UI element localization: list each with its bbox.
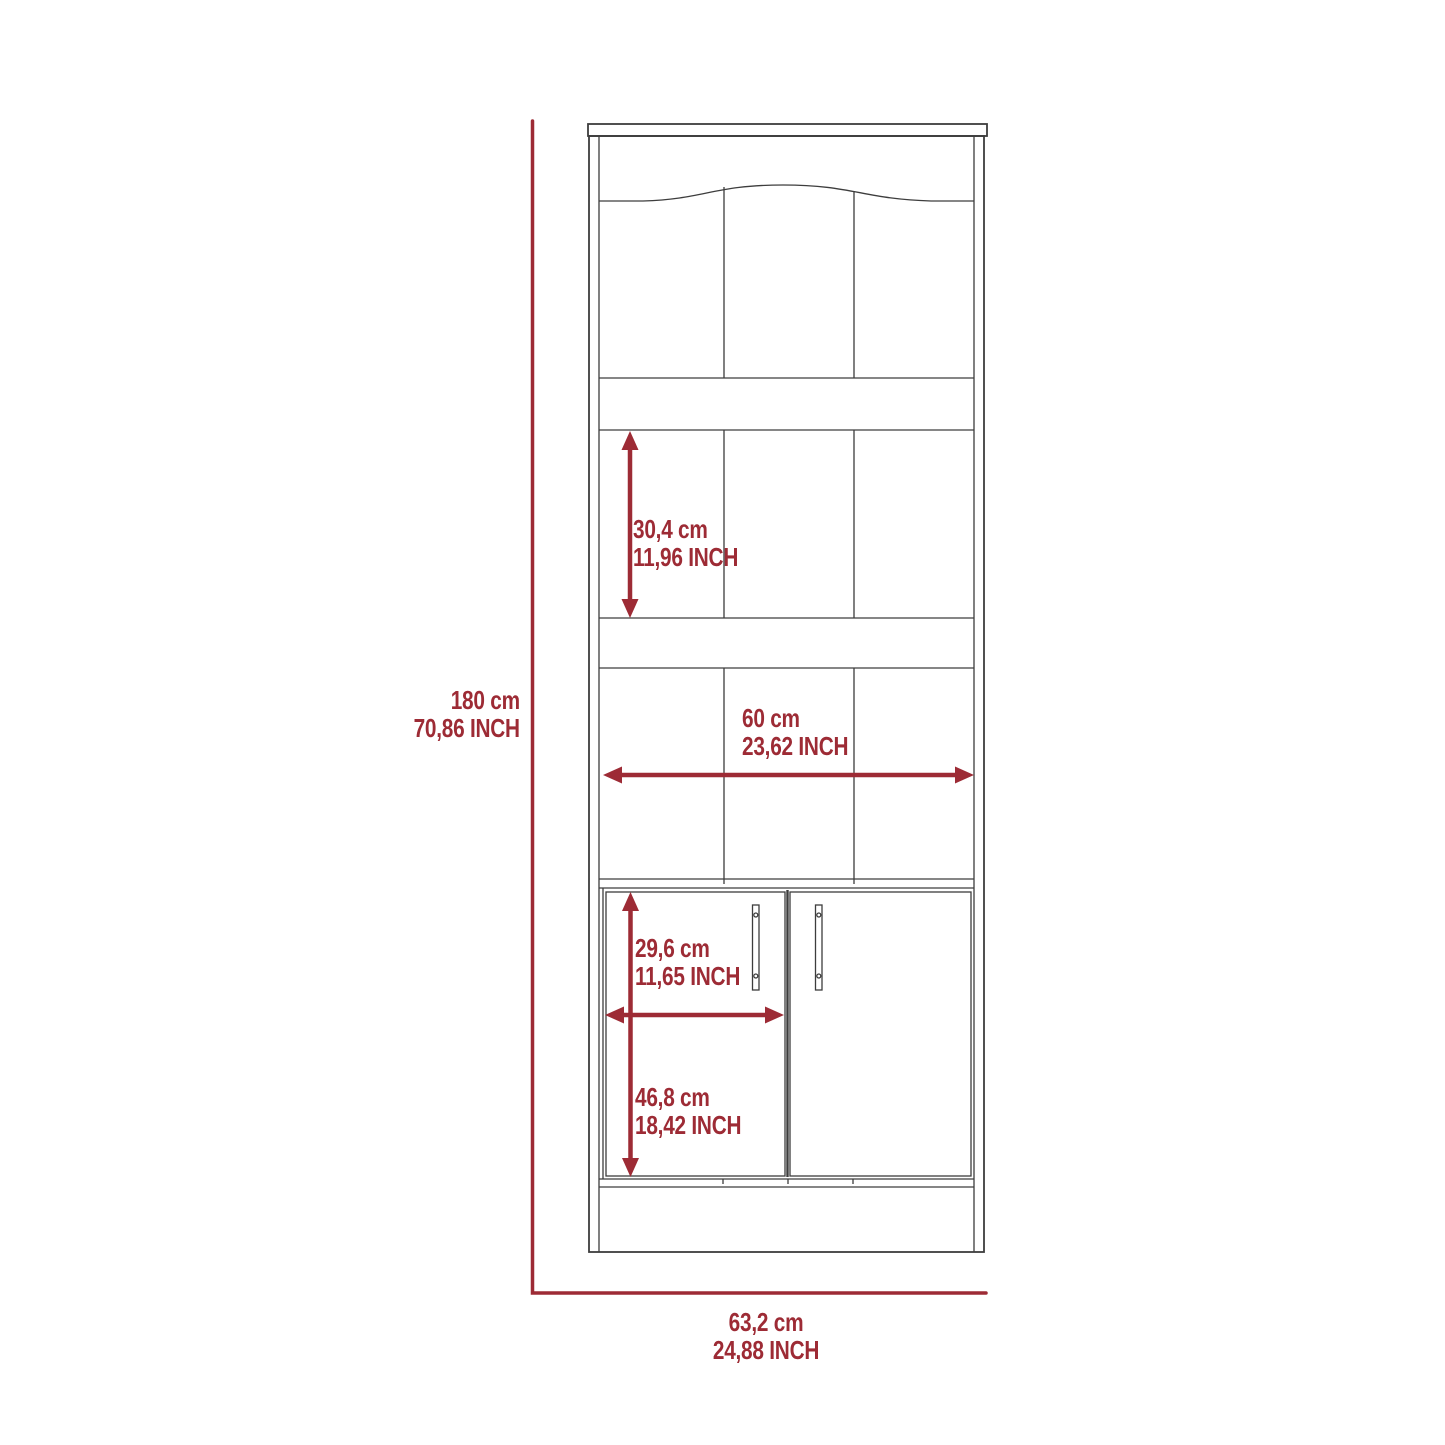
inner-width-cm: 60 cm	[742, 704, 848, 732]
right-door-panel	[790, 892, 971, 1176]
arrow-head-up-icon	[622, 892, 639, 911]
inner-width-arrow	[603, 767, 974, 784]
furniture-dimension-diagram: 180 cm 70,86 INCH 30,4 cm 11,96 INCH 60 …	[0, 0, 1445, 1445]
overall-height-inch: 70,86 INCH	[414, 714, 520, 742]
handle-screw	[754, 913, 758, 917]
door-width-label: 29,6 cm 11,65 INCH	[635, 934, 740, 990]
arrow-head-right-icon	[765, 1007, 784, 1024]
left-door-handle-icon	[753, 905, 760, 990]
shelf-height-cm: 30,4 cm	[633, 515, 738, 543]
shelf-height-label: 30,4 cm 11,96 INCH	[633, 515, 738, 571]
door-width-cm: 29,6 cm	[635, 934, 740, 962]
door-width-inch: 11,65 INCH	[635, 962, 740, 990]
overall-height-label: 180 cm 70,86 INCH	[414, 686, 520, 742]
cabinet-top-board	[588, 124, 987, 136]
handle-screw	[817, 913, 821, 917]
overall-height-cm: 180 cm	[414, 686, 520, 714]
overall-width-inch: 24,88 INCH	[713, 1336, 819, 1364]
overall-width-cm: 63,2 cm	[713, 1308, 819, 1336]
arrow-head-left-icon	[603, 767, 622, 784]
diagram-drawing	[0, 0, 1445, 1445]
door-height-cm: 46,8 cm	[635, 1083, 741, 1111]
arrow-head-up-icon	[622, 431, 639, 450]
door-height-inch: 18,42 INCH	[635, 1111, 741, 1139]
door-height-label: 46,8 cm 18,42 INCH	[635, 1083, 741, 1139]
arrow-head-down-icon	[622, 1158, 639, 1177]
inner-width-label: 60 cm 23,62 INCH	[742, 704, 848, 760]
overall-width-label: 63,2 cm 24,88 INCH	[713, 1308, 819, 1364]
handle-screw	[754, 974, 758, 978]
arrow-head-down-icon	[622, 599, 639, 618]
arrow-head-left-icon	[605, 1007, 624, 1024]
cabinet-arch-valance	[599, 185, 974, 201]
handle-screw	[817, 974, 821, 978]
right-door-handle-icon	[816, 905, 823, 990]
shelf-height-inch: 11,96 INCH	[633, 543, 738, 571]
inner-width-inch: 23,62 INCH	[742, 732, 848, 760]
arrow-head-right-icon	[955, 767, 974, 784]
